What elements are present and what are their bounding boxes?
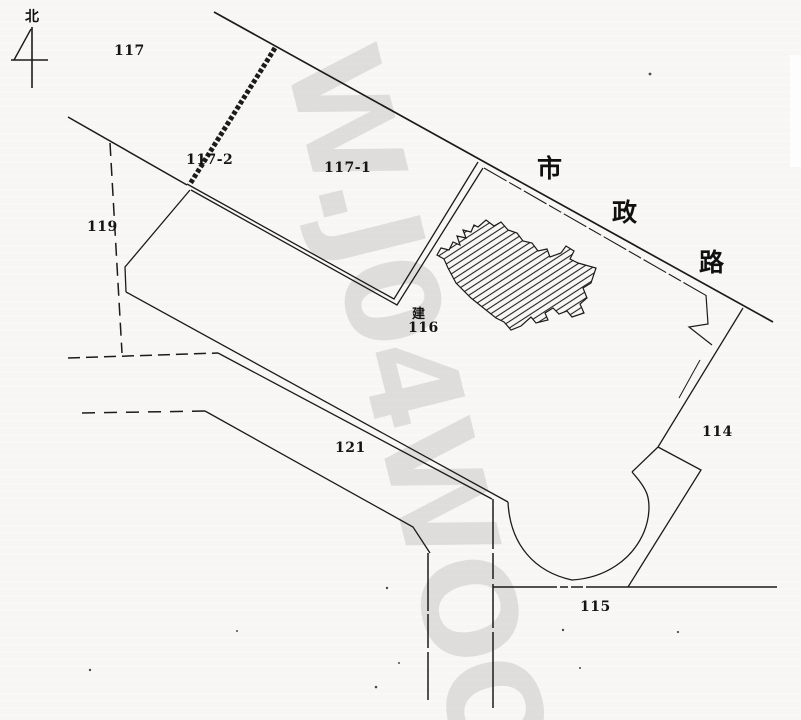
- label-parcel-114: 114: [702, 424, 733, 440]
- north-label: 北: [25, 9, 39, 25]
- arc-connector-line: [632, 447, 658, 472]
- label-parcel-117-1: 117-1: [324, 160, 371, 176]
- label-parcel-117-2: 117-2: [186, 152, 233, 168]
- label-parcel-119: 119: [87, 219, 118, 235]
- label-parcel-121: 121: [335, 440, 366, 456]
- boundary-114-step: [689, 295, 712, 345]
- boundary-119-dashed: [110, 143, 122, 353]
- road-name-char-1: 市: [537, 154, 562, 183]
- map-canvas: W.J04WOO 北: [0, 0, 801, 720]
- scan-edge-artifact: [790, 55, 801, 167]
- label-parcel-117: 117: [114, 43, 145, 59]
- boundary-114-parallel-segment: [679, 360, 700, 398]
- road-121-north-dashed: [68, 353, 218, 358]
- cadastral-map-page: W.J04WOO 北: [0, 0, 801, 720]
- north-arrow: [11, 27, 48, 88]
- watermark-text: W.J04WOO: [255, 31, 577, 720]
- parcel-116-west-boundary: [125, 190, 190, 292]
- road-name-char-2: 政: [612, 198, 638, 227]
- boundary-117-119: [68, 117, 187, 185]
- label-parcel-115: 115: [580, 599, 611, 615]
- boundary-114-zigzag: [628, 447, 701, 587]
- label-parcel-116: 116: [408, 320, 439, 336]
- road-name-char-3: 路: [699, 248, 725, 277]
- road-121-south-dashed: [82, 411, 205, 413]
